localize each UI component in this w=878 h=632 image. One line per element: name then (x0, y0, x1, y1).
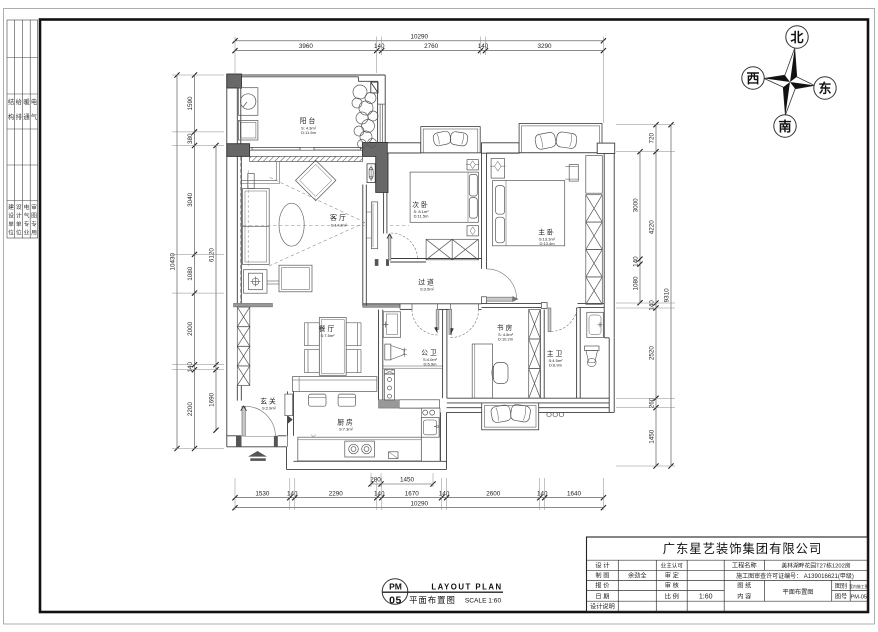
svg-text:设: 设 (8, 212, 14, 220)
svg-text:广东星艺装饰集团有限公司: 广东星艺装饰集团有限公司 (663, 541, 823, 556)
svg-text:9310: 9310 (663, 288, 670, 303)
svg-text:西: 西 (746, 71, 759, 86)
svg-text:建: 建 (8, 203, 14, 211)
svg-text:室内施工图: 室内施工图 (849, 584, 869, 589)
svg-text:D:11.5m: D:11.5m (414, 214, 429, 219)
svg-text:PM: PM (389, 582, 402, 592)
svg-text:1080: 1080 (632, 276, 639, 291)
svg-text:2600: 2600 (486, 490, 501, 497)
svg-text:用: 用 (31, 230, 37, 237)
svg-text:设: 设 (16, 203, 22, 211)
svg-text:设 计: 设 计 (595, 562, 609, 570)
svg-text:1640: 1640 (567, 490, 582, 497)
svg-text:D:6.9m: D:6.9m (424, 362, 438, 367)
svg-text:构: 构 (8, 112, 14, 121)
svg-text:厨房: 厨房 (337, 418, 355, 427)
svg-text:书房: 书房 (497, 323, 515, 332)
svg-text:给: 给 (16, 97, 23, 106)
svg-text:140: 140 (374, 490, 385, 497)
svg-text:140: 140 (632, 256, 639, 267)
svg-text:3960: 3960 (299, 43, 314, 50)
svg-text:审 核: 审 核 (665, 582, 679, 590)
svg-text:专: 专 (31, 220, 37, 228)
svg-text:3000: 3000 (632, 198, 639, 213)
svg-text:审: 审 (31, 203, 37, 211)
svg-text:餐厅: 餐厅 (319, 324, 337, 333)
svg-text:图: 图 (31, 212, 37, 220)
svg-text:气: 气 (24, 212, 30, 220)
svg-text:暖: 暖 (23, 98, 30, 106)
svg-text:位: 位 (16, 229, 22, 237)
svg-text:图 纸: 图 纸 (737, 582, 751, 590)
svg-text:S:14.3m²: S:14.3m² (331, 223, 348, 228)
svg-text:位: 位 (8, 229, 14, 237)
svg-text:1450: 1450 (400, 477, 415, 484)
svg-text:D:6.9m: D:6.9m (549, 363, 563, 368)
svg-text:北: 北 (790, 30, 803, 45)
svg-text:S:7.5m²: S:7.5m² (320, 333, 335, 338)
svg-text:玄关: 玄关 (260, 396, 278, 405)
svg-text:D:11.5m: D:11.5m (301, 130, 316, 135)
svg-text:电: 电 (24, 203, 30, 211)
svg-text:专: 专 (24, 220, 30, 228)
svg-text:电: 电 (31, 97, 38, 106)
svg-text:次卧: 次卧 (412, 200, 430, 209)
svg-text:气: 气 (31, 112, 38, 121)
svg-text:140: 140 (287, 490, 298, 497)
svg-text:结: 结 (8, 97, 14, 106)
svg-text:140: 140 (648, 300, 655, 311)
svg-text:140: 140 (374, 43, 385, 50)
svg-text:业主认可: 业主认可 (661, 562, 684, 570)
svg-text:客厅: 客厅 (330, 213, 348, 222)
svg-text:SCALE 1:60: SCALE 1:60 (465, 598, 502, 605)
svg-text:2200: 2200 (187, 402, 194, 417)
svg-text:主卫: 主卫 (547, 349, 565, 358)
svg-text:内 容: 内 容 (737, 592, 751, 600)
svg-text:平面布置图: 平面布置图 (783, 588, 814, 596)
svg-text:阳台: 阳台 (300, 116, 318, 125)
svg-text:720: 720 (648, 132, 655, 143)
svg-text:日 期: 日 期 (595, 592, 609, 600)
svg-text:业: 业 (24, 229, 30, 237)
svg-text:制 图: 制 图 (595, 572, 609, 580)
svg-text:施工图审查许可证编号： A139016621(甲级): 施工图审查许可证编号： A139016621(甲级) (736, 572, 854, 580)
svg-text:排: 排 (16, 112, 23, 121)
svg-text:公卫: 公卫 (421, 349, 439, 357)
svg-text:1:60: 1:60 (699, 594, 713, 601)
svg-text:图别: 图别 (835, 582, 847, 590)
svg-text:比 例: 比 例 (665, 592, 679, 600)
svg-text:PM-05: PM-05 (851, 594, 867, 600)
svg-text:S:3.5m²: S:3.5m² (420, 287, 435, 292)
svg-text:280: 280 (370, 477, 381, 484)
svg-text:10430: 10430 (169, 253, 176, 271)
svg-text:260: 260 (648, 397, 655, 408)
svg-text:6120: 6120 (208, 248, 215, 263)
svg-text:1670: 1670 (405, 490, 420, 497)
svg-text:2290: 2290 (329, 490, 344, 497)
svg-text:05: 05 (389, 595, 402, 607)
svg-text:140: 140 (537, 490, 548, 497)
svg-text:2000: 2000 (187, 321, 194, 336)
svg-text:1690: 1690 (208, 392, 215, 407)
svg-text:380: 380 (187, 133, 194, 144)
svg-text:单: 单 (16, 220, 22, 228)
svg-text:2760: 2760 (424, 43, 439, 50)
svg-text:报 价: 报 价 (595, 582, 609, 590)
svg-text:140: 140 (187, 361, 194, 372)
svg-text:单: 单 (8, 220, 14, 228)
svg-text:东: 东 (818, 81, 831, 96)
svg-text:设计说明: 设计说明 (590, 603, 615, 611)
svg-text:2520: 2520 (648, 346, 655, 361)
svg-text:计: 计 (16, 212, 22, 220)
svg-text:余劲全: 余劲全 (628, 572, 647, 580)
svg-text:1590: 1590 (187, 96, 194, 111)
svg-text:140: 140 (478, 43, 489, 50)
svg-text:D:13.4m: D:13.4m (539, 241, 555, 246)
svg-text:1080: 1080 (187, 266, 194, 281)
svg-text:10290: 10290 (410, 33, 428, 40)
svg-text:S:7.3m²: S:7.3m² (339, 427, 354, 432)
svg-text:10290: 10290 (410, 500, 428, 507)
svg-text:图号: 图号 (835, 593, 847, 600)
svg-text:140: 140 (439, 490, 450, 497)
svg-text:通: 通 (23, 112, 30, 121)
svg-text:南: 南 (778, 119, 791, 134)
svg-text:S:2.9m²: S:2.9m² (262, 405, 277, 410)
svg-text:过道: 过道 (418, 278, 436, 287)
svg-text:平面布置图: 平面布置图 (409, 595, 456, 605)
svg-text:1530: 1530 (255, 490, 270, 497)
svg-text:1450: 1450 (648, 429, 655, 444)
svg-text:工程名称: 工程名称 (732, 562, 757, 570)
svg-text:主卧: 主卧 (538, 228, 556, 237)
svg-text:3040: 3040 (187, 192, 194, 207)
svg-text:4220: 4220 (648, 220, 655, 235)
svg-text:美林湖畔花园T27栋1202房: 美林湖畔花园T27栋1202房 (781, 562, 850, 570)
svg-text:3290: 3290 (537, 43, 552, 50)
svg-text:D:10.2m: D:10.2m (498, 337, 514, 342)
svg-text:审 定: 审 定 (665, 572, 679, 580)
svg-text:LAYOUT PLAN: LAYOUT PLAN (431, 582, 502, 591)
